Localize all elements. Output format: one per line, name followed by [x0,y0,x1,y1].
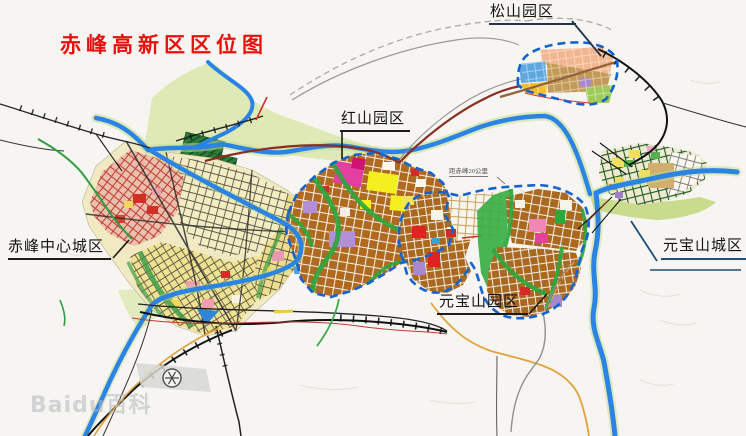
label-songshan-park: 松山园区 [489,4,576,25]
label-hongshan-park: 红山园区 [340,111,410,132]
map-graphic [0,0,746,436]
chifeng-zone-map: 赤峰高新区区位图 松山园区 红山园区 赤峰中心城区 元宝山园区 元宝山城区 距赤… [0,0,746,436]
label-chifeng-central-city: 赤峰中心城区 [8,239,111,260]
chifeng-central-city [82,141,309,336]
watermark-baidu-baike: Baidu百科 [30,387,152,419]
distance-annotation: 距赤峰20公里 [449,165,488,177]
landmark-circle-icon [163,369,181,387]
label-yuanbaoshan-park: 元宝山园区 [437,294,528,315]
label-yuanbaoshan-city: 元宝山城区 [661,238,746,260]
ybs-city-leader-line [631,221,657,261]
distance-note-leader [497,177,505,184]
map-title: 赤峰高新区区位图 [60,29,268,59]
